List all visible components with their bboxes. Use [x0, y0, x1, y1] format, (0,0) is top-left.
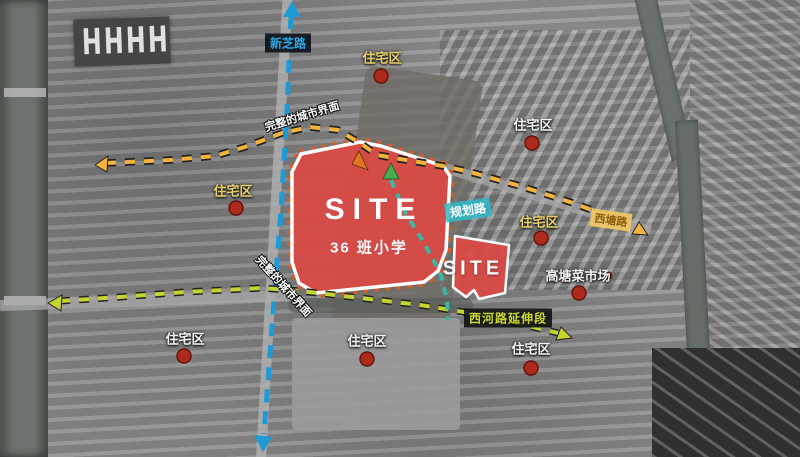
main-site-subtitle: 36 班小学 [330, 237, 408, 258]
area-label-residential: 住宅区 [362, 48, 401, 67]
residential-marker [177, 349, 191, 363]
site-analysis-map: 新芝路 规划路 西塘路 西河路延伸段 完整的城市界面 完整的城市界面 住宅区 住… [0, 0, 800, 457]
area-label-residential: 住宅区 [347, 331, 386, 350]
area-label-residential: 住宅区 [519, 212, 558, 231]
annotation-overlay [0, 0, 800, 457]
road-label-xihe-extension: 西河路延伸段 [464, 309, 552, 328]
residential-marker [525, 136, 539, 150]
secondary-site-title: SITE [443, 258, 503, 281]
residential-marker [360, 352, 374, 366]
axis-arrow-down-icon [254, 435, 272, 452]
residential-marker [374, 69, 388, 83]
area-label-residential: 住宅区 [513, 115, 552, 134]
interface-north-arrow-left-icon [95, 156, 108, 172]
area-label-residential: 住宅区 [213, 181, 252, 200]
axis-arrow-up-icon [283, 1, 301, 17]
market-marker [572, 286, 586, 300]
extension-arrow-left-icon [48, 295, 62, 311]
area-label-residential: 住宅区 [165, 329, 204, 348]
area-label-market: 高塘菜市场 [545, 266, 610, 285]
residential-marker [534, 231, 548, 245]
main-site-title: SITE [325, 193, 424, 227]
axis-line-blue [264, 16, 291, 434]
road-label-xinzhi: 新芝路 [265, 34, 311, 53]
h-shaped-buildings [84, 25, 166, 54]
interface-north-arrow-right-icon [632, 222, 648, 235]
residential-marker [229, 201, 243, 215]
extension-arrow-right-icon [556, 327, 572, 340]
residential-marker [524, 361, 538, 375]
area-label-residential: 住宅区 [511, 339, 550, 358]
